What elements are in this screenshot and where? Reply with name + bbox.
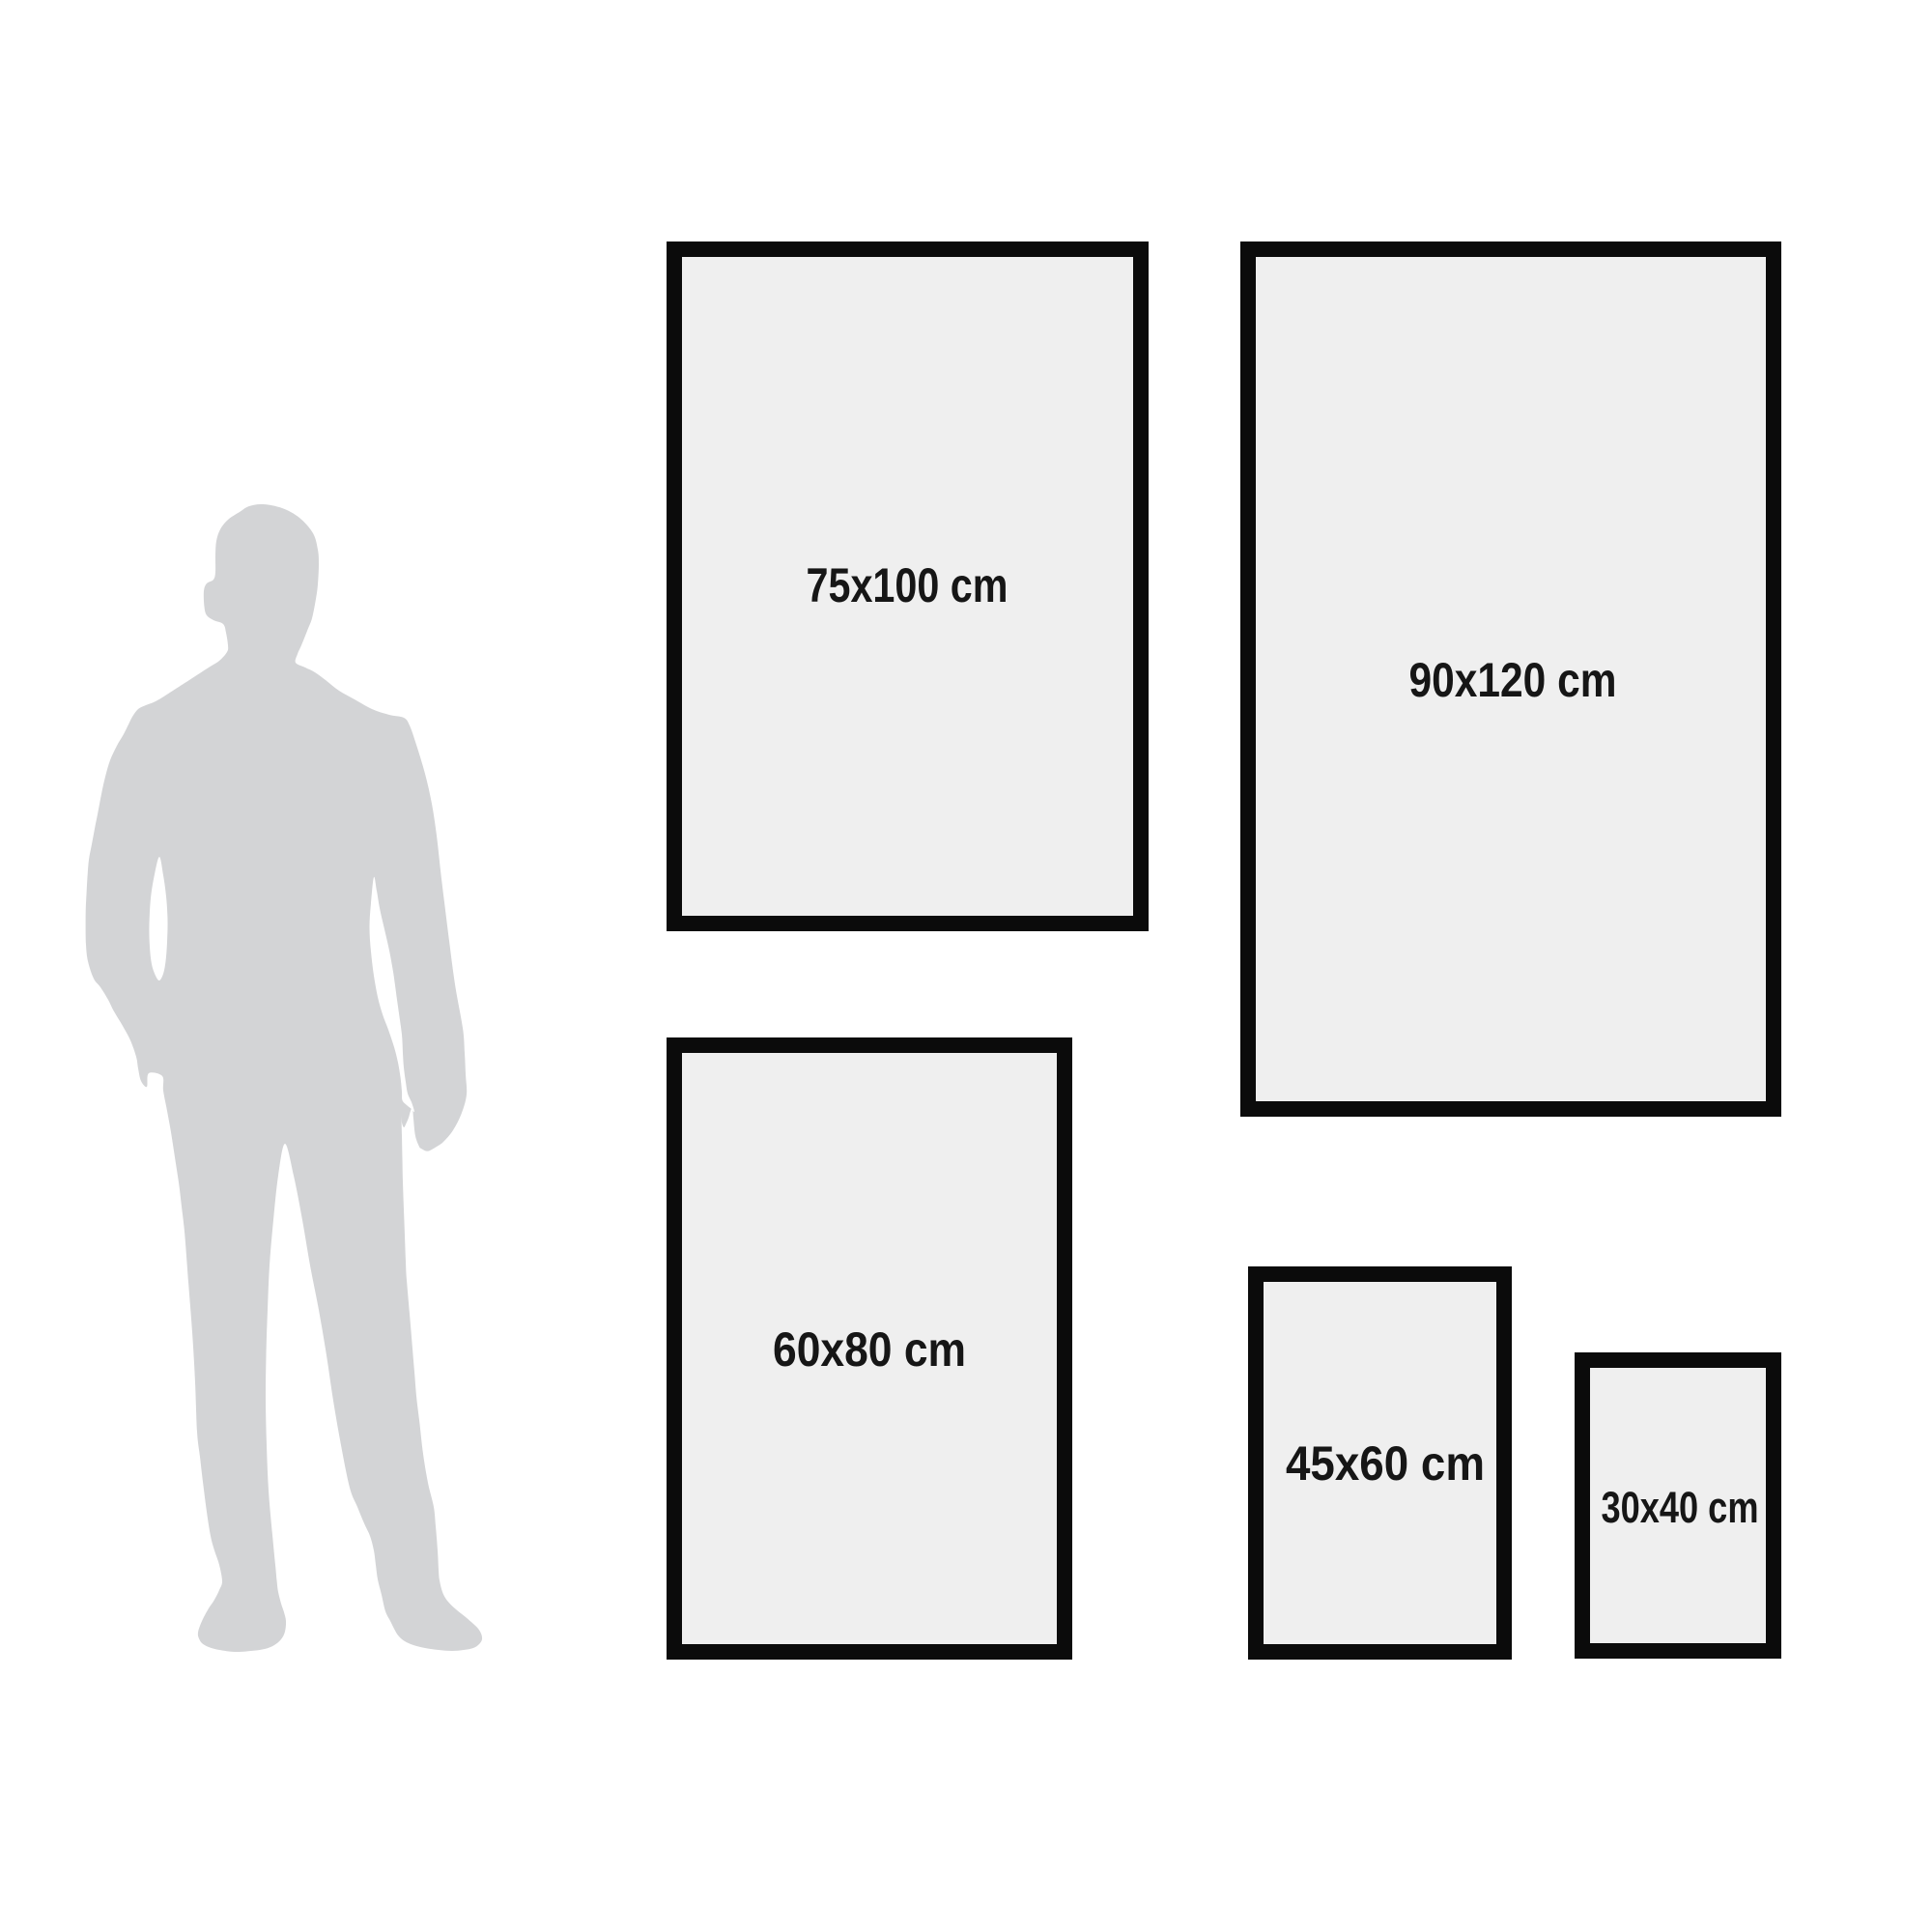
svg-text:60x80 cm: 60x80 cm	[773, 1322, 966, 1377]
svg-text:75x100 cm: 75x100 cm	[807, 558, 1009, 612]
svg-text:45x60 cm: 45x60 cm	[1286, 1436, 1485, 1491]
svg-text:90x120 cm: 90x120 cm	[1409, 653, 1617, 707]
svg-text:30x40 cm: 30x40 cm	[1602, 1483, 1759, 1532]
